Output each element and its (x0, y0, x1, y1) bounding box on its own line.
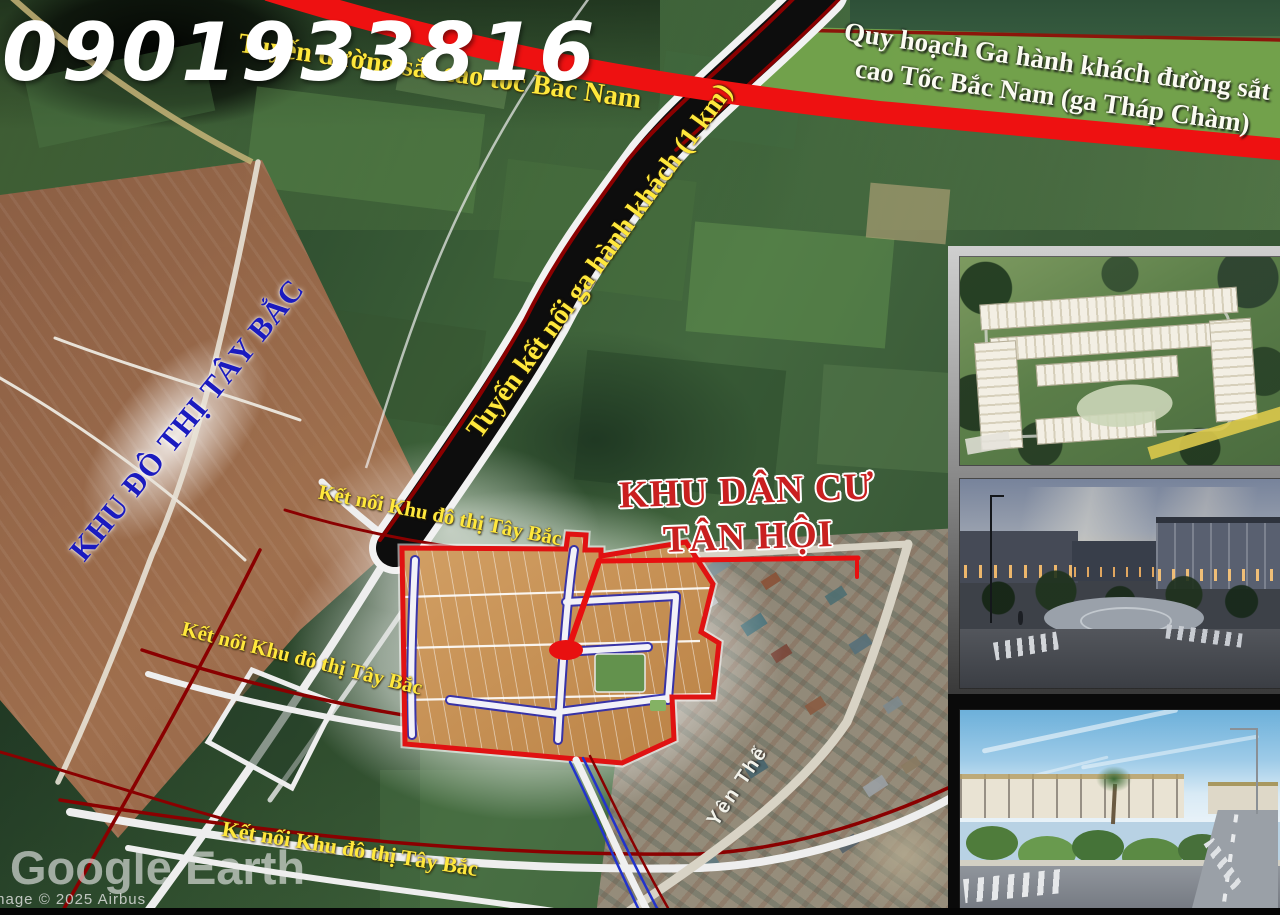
phone-number: 0901933816 (2, 6, 599, 99)
site-park (595, 654, 645, 692)
townhouse-row (1209, 318, 1258, 423)
real-estate-flyer: Tuyến đường sắt cao tốc Bắc Nam Quy hoạc… (0, 0, 1280, 915)
project-name-line2: TÂN HỘI (610, 510, 886, 566)
lamp-arm (990, 495, 1004, 497)
street-lamp (990, 495, 992, 623)
site-pond (650, 700, 666, 711)
gallery-photo-evening (960, 479, 1280, 688)
roof-line (960, 774, 1184, 779)
townhouse-row (1036, 355, 1179, 387)
project-name-label: KHU DÂN CƯ TÂN HỘI (608, 463, 886, 565)
gallery-photo-daytime (960, 710, 1280, 908)
bush (966, 826, 1018, 860)
imagery-attribution: mage © 2025 Airbus (0, 891, 146, 908)
roof-line (1208, 782, 1278, 786)
palm-canopy (1096, 766, 1132, 792)
pedestrian (1018, 611, 1023, 625)
roof-edge (1156, 517, 1280, 523)
unit-divisions (960, 774, 1184, 818)
townhouse-row (960, 774, 1184, 818)
gallery-photo-aerial (960, 257, 1280, 465)
street-lamp (1256, 728, 1258, 814)
planned-blue-road (570, 756, 668, 912)
lamp-arm (1230, 728, 1258, 730)
bush (1072, 830, 1124, 864)
townhouse-row (1208, 782, 1278, 814)
bottom-black-strip (0, 908, 1280, 915)
google-earth-logo: Google Earth (10, 840, 305, 895)
